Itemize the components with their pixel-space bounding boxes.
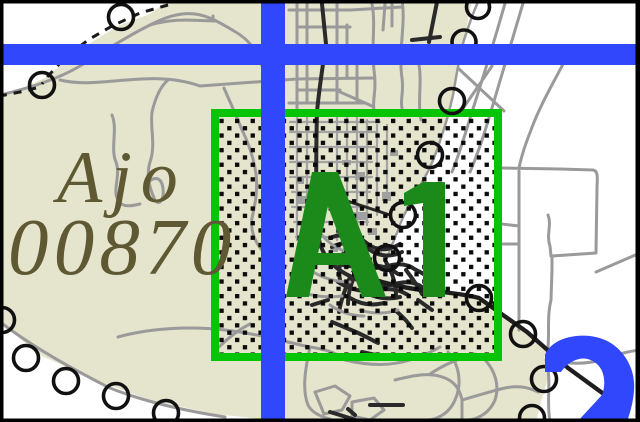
svg-text:00870: 00870 xyxy=(8,202,237,292)
